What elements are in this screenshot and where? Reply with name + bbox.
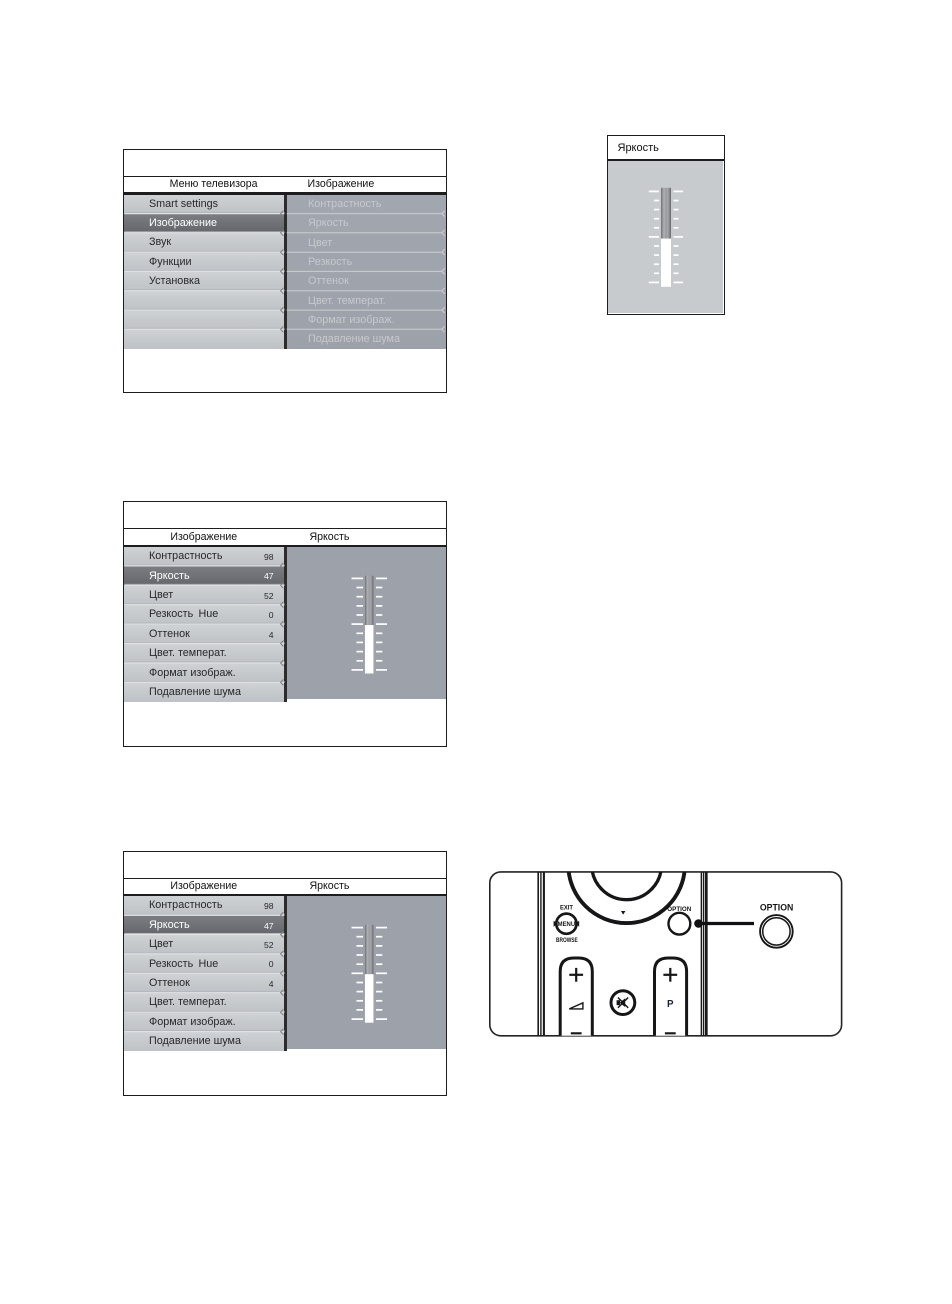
svg-text:MENU: MENU	[558, 921, 576, 928]
svg-text:BROWSE: BROWSE	[556, 937, 578, 944]
svg-text:P: P	[667, 999, 674, 1010]
svg-text:OPTION: OPTION	[760, 903, 794, 913]
svg-text:EXIT: EXIT	[560, 904, 573, 911]
